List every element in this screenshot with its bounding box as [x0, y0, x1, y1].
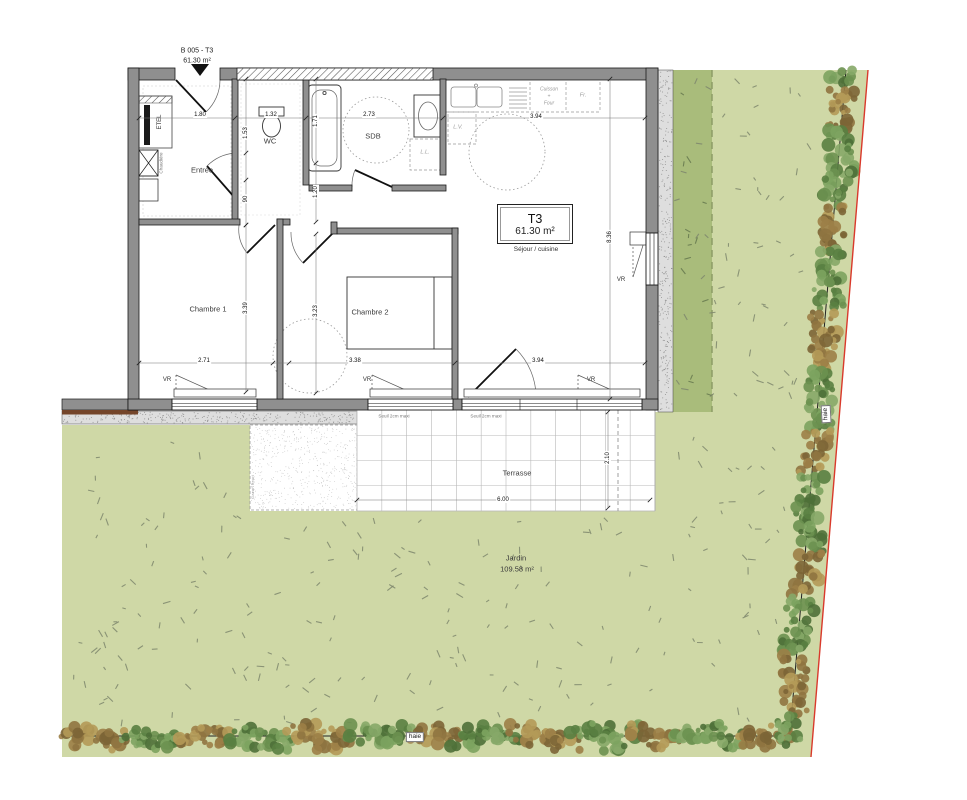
wall-hatching [237, 68, 433, 80]
unit-type: T3 [528, 212, 543, 226]
apartment [128, 64, 658, 410]
neighbour-wall [62, 399, 138, 415]
unit-label-inner: T3 61.30 m² [500, 207, 570, 241]
floor-plan-scene: B 005 - T361.30 m²EntréeWCSDBChambre 1Ch… [0, 0, 967, 800]
washbasin [414, 95, 442, 137]
floor-plan-drawing [0, 0, 967, 800]
etel-closet [139, 96, 172, 148]
gazon-square [250, 425, 357, 510]
bed [347, 277, 452, 349]
hedge-label-bottom: haie [406, 732, 424, 742]
unit-label-box: T3 61.30 m² [497, 204, 573, 244]
hedge-label-right: haie [821, 405, 832, 424]
unit-area: 61.30 m² [515, 226, 554, 237]
bathtub [308, 85, 341, 171]
boiler [139, 150, 158, 201]
